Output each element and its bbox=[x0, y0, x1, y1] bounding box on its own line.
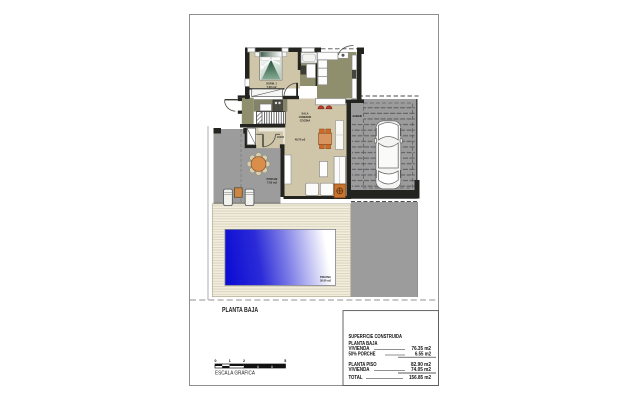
svg-text:5: 5 bbox=[284, 359, 286, 363]
svg-text:30.00 m2: 30.00 m2 bbox=[320, 279, 331, 283]
svg-text:TOTAL: TOTAL bbox=[349, 375, 364, 381]
svg-text:6.55 m2: 6.55 m2 bbox=[415, 352, 431, 358]
svg-text:156.85 m2: 156.85 m2 bbox=[409, 375, 431, 381]
svg-text:SUPERFICIE CONSTRUIDA: SUPERFICIE CONSTRUIDA bbox=[349, 334, 403, 340]
svg-text:VIVIENDA: VIVIENDA bbox=[349, 367, 370, 373]
svg-text:ACCESO: ACCESO bbox=[277, 136, 284, 139]
svg-text:ESCALA GRÁFICA: ESCALA GRÁFICA bbox=[215, 369, 256, 376]
svg-text:7.00 m2: 7.00 m2 bbox=[267, 85, 277, 89]
svg-text:0: 0 bbox=[215, 359, 217, 363]
svg-text:48.70 m2: 48.70 m2 bbox=[295, 138, 306, 142]
svg-text:GARAJE: GARAJE bbox=[352, 114, 362, 118]
svg-text:74.05 m2: 74.05 m2 bbox=[411, 367, 431, 373]
svg-text:50% PORCHE: 50% PORCHE bbox=[349, 352, 376, 358]
svg-text:PLANTA BAJA: PLANTA BAJA bbox=[222, 307, 258, 314]
svg-text:COCINA: COCINA bbox=[300, 119, 311, 123]
svg-text:2: 2 bbox=[243, 359, 245, 363]
svg-text:1: 1 bbox=[229, 359, 231, 363]
svg-text:7.05 m2: 7.05 m2 bbox=[267, 181, 277, 185]
